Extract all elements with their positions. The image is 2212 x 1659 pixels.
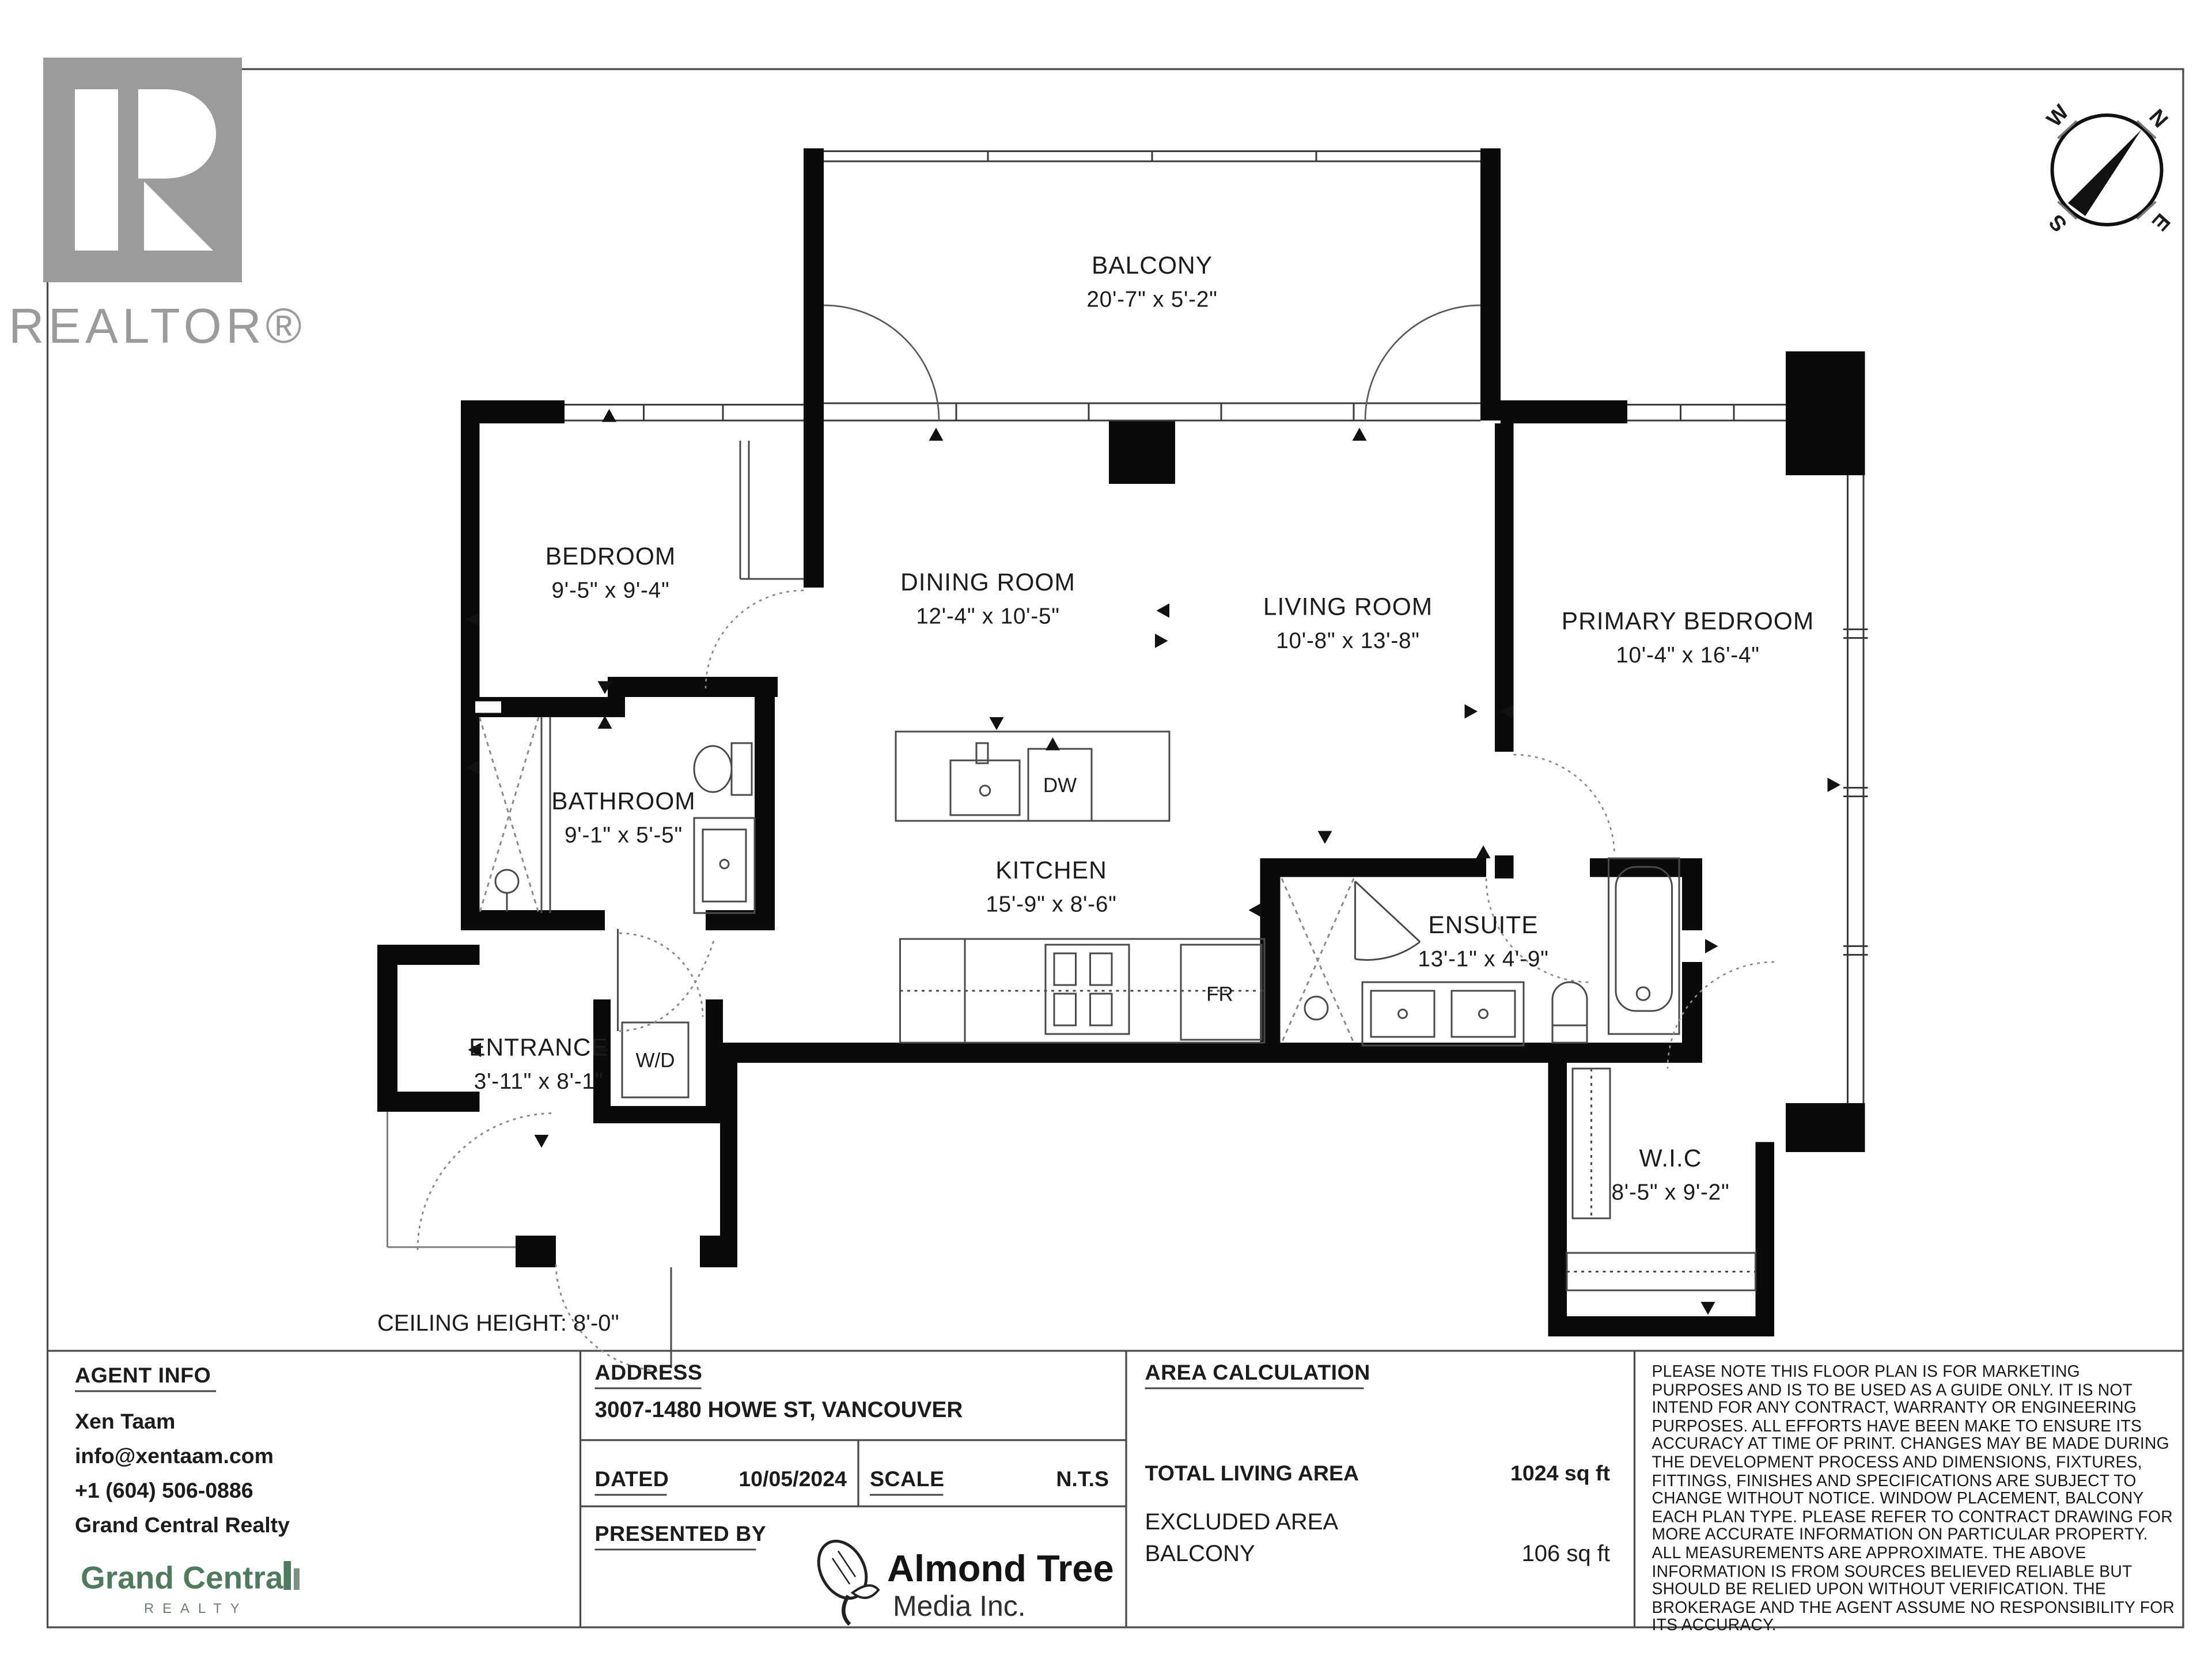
agent-name: Xen Taam xyxy=(75,1409,175,1433)
address-value: 3007-1480 HOWE ST, VANCOUVER xyxy=(595,1397,963,1422)
area-calculation-label: AREA CALCULATION xyxy=(1145,1360,1370,1384)
room-label-kitchen: KITCHEN xyxy=(995,857,1107,884)
room-dims-entrance: 3'-11" x 8'-1" xyxy=(474,1069,603,1094)
almond-tree-logo-sub: Media Inc. xyxy=(893,1590,1026,1622)
agent-phone: +1 (604) 506-0886 xyxy=(75,1478,253,1502)
realtor-logo-icon xyxy=(43,58,242,282)
grand-central-logo-name: Grand Central xyxy=(81,1560,292,1596)
agent-info-section: AGENT INFO Xen Taam info@xentaam.com +1 … xyxy=(75,1363,300,1616)
compass-east-label: E xyxy=(2147,209,2175,236)
room-dims-wic: 8'-5" x 9'-2" xyxy=(1612,1180,1730,1205)
ceiling-height-note: CEILING HEIGHT: 8'-0" xyxy=(377,1310,619,1336)
room-label-bedroom: BEDROOM xyxy=(546,543,676,570)
room-dims-dining-room: 12'-4" x 10'-5" xyxy=(916,604,1060,629)
dated-label: DATED xyxy=(595,1467,669,1491)
fridge-label: FR xyxy=(1206,983,1233,1006)
washer-dryer-label: W/D xyxy=(635,1050,675,1072)
room-label-dining-room: DINING ROOM xyxy=(900,569,1075,596)
almond-tree-logo-name: Almond Tree xyxy=(887,1547,1114,1589)
room-label-living-room: LIVING ROOM xyxy=(1263,594,1433,621)
room-label-ensuite: ENSUITE xyxy=(1428,912,1538,939)
compass-north-label: N xyxy=(2145,104,2173,132)
agent-brokerage: Grand Central Realty xyxy=(75,1513,290,1537)
presented-by-label: PRESENTED BY xyxy=(595,1521,767,1546)
excluded-area-name: BALCONY xyxy=(1145,1541,1255,1566)
realtor-wordmark: REALTOR® xyxy=(9,299,306,354)
almond-tree-logo-icon xyxy=(809,1533,878,1624)
room-label-primary-bedroom: PRIMARY BEDROOM xyxy=(1562,608,1815,635)
address-section: ADDRESS 3007-1480 HOWE ST, VANCOUVER DAT… xyxy=(595,1360,1114,1624)
scale-label: SCALE xyxy=(870,1467,945,1491)
excluded-area-value: 106 sq ft xyxy=(1522,1541,1610,1566)
grand-central-logo-sub: REALTY xyxy=(144,1601,248,1616)
room-label-bathroom: BATHROOM xyxy=(551,788,695,815)
floor-plan-page: REALTOR® W N S E xyxy=(0,0,2212,1659)
room-dims-kitchen: 15'-9" x 8'-6" xyxy=(986,892,1116,917)
room-dims-living-room: 10'-8" x 13'-8" xyxy=(1276,628,1420,653)
disclaimer-text: PLEASE NOTE THIS FLOOR PLAN IS FOR MARKE… xyxy=(1652,1364,2176,1636)
room-dims-balcony: 20'-7" x 5'-2" xyxy=(1086,287,1217,312)
total-living-area-value: 1024 sq ft xyxy=(1510,1461,1611,1485)
dated-value: 10/05/2024 xyxy=(738,1467,847,1491)
room-label-entrance: ENTRANCE xyxy=(469,1035,608,1062)
compass-west-label: W xyxy=(2041,100,2073,131)
room-dims-ensuite: 13'-1" x 4'-9" xyxy=(1418,947,1548,972)
dishwasher-label: DW xyxy=(1043,774,1077,797)
total-living-area-label: TOTAL LIVING AREA xyxy=(1145,1461,1359,1485)
room-label-balcony: BALCONY xyxy=(1092,252,1213,279)
grand-central-logo-icon: Grand Central REALTY xyxy=(81,1560,300,1617)
agent-info-label: AGENT INFO xyxy=(75,1363,211,1387)
agent-email: info@xentaam.com xyxy=(75,1444,274,1468)
address-label: ADDRESS xyxy=(595,1360,703,1384)
compass-icon: W N S E xyxy=(2041,100,2175,237)
room-label-wic: W.I.C xyxy=(1639,1145,1702,1172)
room-dims-bedroom: 9'-5" x 9'-4" xyxy=(552,578,670,603)
compass-south-label: S xyxy=(2044,210,2071,237)
excluded-area-label: EXCLUDED AREA xyxy=(1145,1509,1339,1535)
room-dims-primary-bedroom: 10'-4" x 16'-4" xyxy=(1616,643,1760,668)
scale-value: N.T.S xyxy=(1056,1467,1109,1491)
area-calculation-section: AREA CALCULATION TOTAL LIVING AREA 1024 … xyxy=(1145,1360,1611,1566)
room-dims-bathroom: 9'-1" x 5'-5" xyxy=(565,823,683,848)
